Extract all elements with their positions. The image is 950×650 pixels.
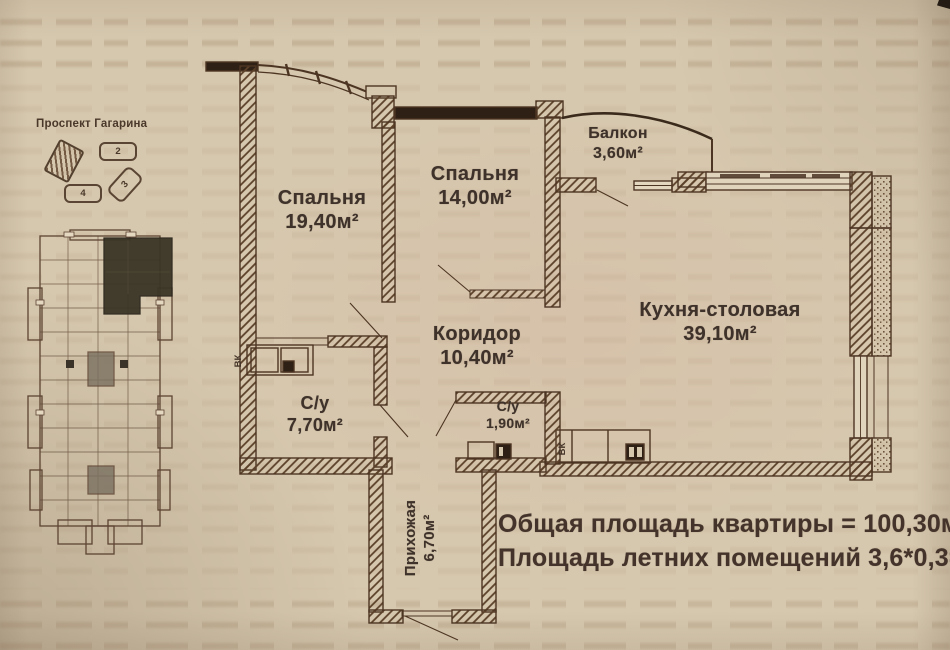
shaft-label-bathroom1: ВК	[233, 349, 247, 373]
door-swing-bathroom1	[380, 405, 408, 437]
site-block-4: 4	[64, 184, 102, 203]
room-name: Балкон	[588, 125, 648, 142]
total-area-line: Общая площадь квартиры = 100,30м	[498, 510, 950, 539]
room-area: 39,10м²	[610, 322, 830, 346]
toilet-fixture	[496, 444, 511, 459]
scanned-floor-plan-page: Проспект Гагарина 2 3 4 Спальня 19,40м² …	[0, 0, 950, 650]
site-block-4-number: 4	[80, 188, 85, 199]
shaft-label-kitchen: ВК	[557, 437, 571, 461]
room-area: 10,40м²	[407, 346, 547, 370]
room-label-hallway: Прихожая 6,70м²	[401, 478, 453, 598]
room-label-balcony: Балкон 3,60м²	[558, 124, 678, 164]
room-label-corridor: Коридор 10,40м²	[407, 322, 547, 370]
room-label-bathroom2: С/у 1,90м²	[463, 398, 553, 432]
door-swing-balcony	[597, 190, 628, 206]
room-name: С/у	[497, 398, 520, 414]
room-label-bathroom1: С/у 7,70м²	[265, 392, 365, 436]
room-label-bedroom1: Спальня 19,40м²	[252, 186, 392, 234]
room-name: Спальня	[431, 163, 520, 185]
room-area: 19,40м²	[252, 210, 392, 234]
door-swing-entry	[405, 616, 458, 640]
door-swing-bathroom2	[436, 400, 456, 436]
site-block-2-number: 2	[115, 146, 120, 157]
room-name: Спальня	[278, 187, 367, 209]
door-swing-bedroom2	[438, 265, 470, 292]
room-name: Прихожая	[402, 500, 419, 576]
room-label-bedroom2: Спальня 14,00м²	[405, 162, 545, 210]
room-name: Коридор	[433, 323, 521, 345]
site-block-2: 2	[99, 142, 137, 161]
bedroom-divider-wall	[256, 122, 395, 347]
room-area: 3,60м²	[558, 144, 678, 164]
room-area: 14,00м²	[405, 186, 545, 210]
room-name: Кухня-столовая	[639, 299, 800, 321]
street-label: Проспект Гагарина	[36, 118, 176, 130]
room-label-kitchen: Кухня-столовая 39,10м²	[610, 298, 830, 346]
building-key-plan	[28, 230, 172, 554]
door-swing-bedroom1	[350, 303, 382, 338]
room-area: 6,70м²	[420, 478, 439, 598]
room-area: 1,90м²	[463, 415, 553, 432]
site-block-3-number: 3	[119, 179, 131, 190]
room-name: С/у	[301, 393, 330, 413]
room-area: 7,70м²	[265, 414, 365, 436]
shaft-box	[283, 361, 294, 372]
summer-area-line: Площадь летних помещений 3,6*0,3=1,	[498, 544, 950, 573]
